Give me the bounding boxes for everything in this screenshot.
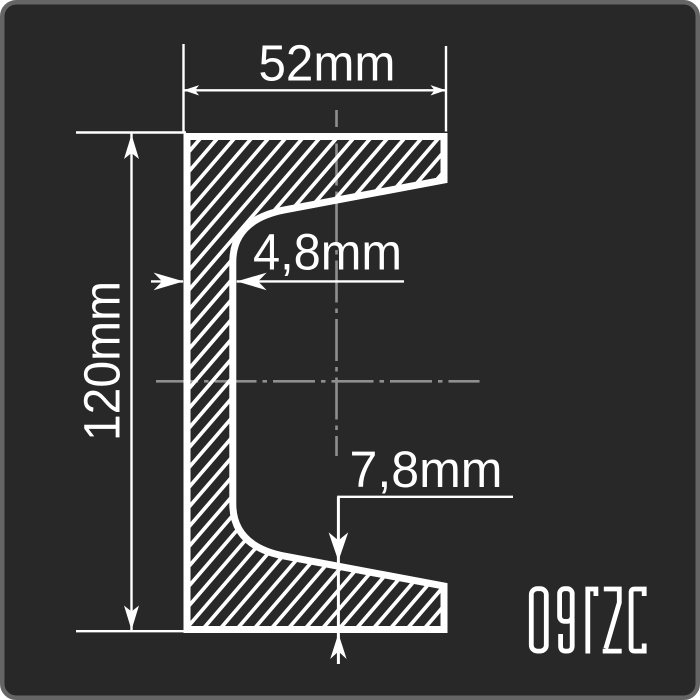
svg-text:52mm: 52mm [259,34,396,91]
svg-text:120mm: 120mm [74,281,131,441]
svg-text:4,8mm: 4,8mm [253,224,402,281]
svg-text:7,8mm: 7,8mm [350,441,503,498]
